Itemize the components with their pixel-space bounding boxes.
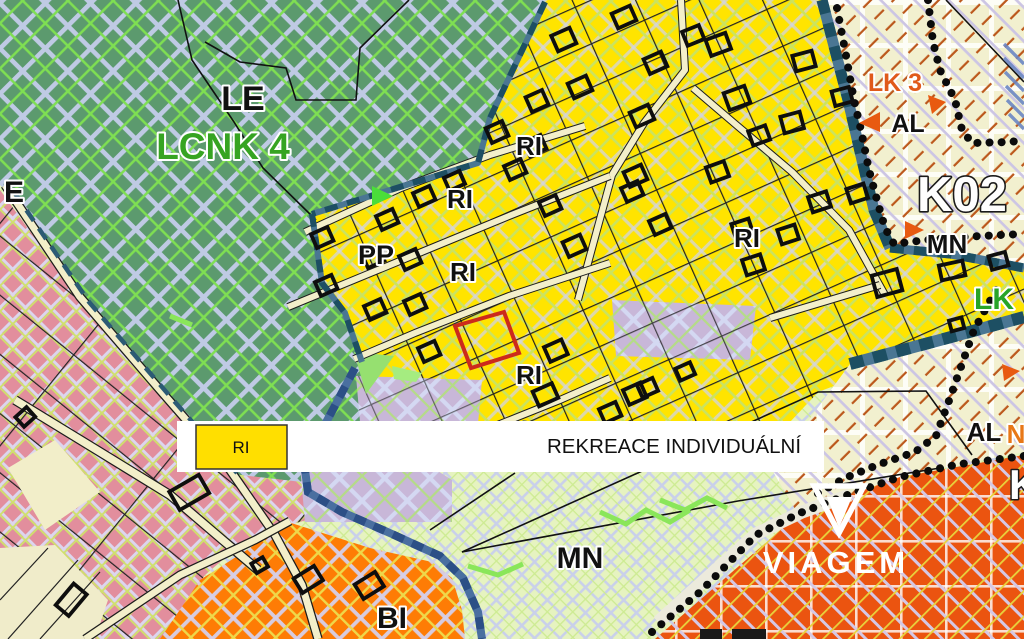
svg-text:RI: RI <box>447 184 473 214</box>
svg-text:REKREACE INDIVIDUÁLNÍ: REKREACE INDIVIDUÁLNÍ <box>547 435 801 458</box>
svg-text:E: E <box>4 176 24 209</box>
svg-text:AL: AL <box>891 110 924 138</box>
svg-text:LE: LE <box>221 80 264 118</box>
svg-text:VIAGEM: VIAGEM <box>763 545 909 580</box>
svg-text:K02: K02 <box>917 168 1007 222</box>
svg-text:LK: LK <box>974 283 1014 316</box>
svg-text:K: K <box>1009 461 1024 508</box>
svg-text:LK 3: LK 3 <box>868 69 922 97</box>
svg-text:AL: AL <box>967 417 1002 447</box>
svg-text:RI: RI <box>233 438 250 457</box>
svg-text:N: N <box>1007 419 1024 449</box>
svg-text:PP: PP <box>358 240 394 270</box>
svg-text:RI: RI <box>516 360 542 390</box>
svg-text:RI: RI <box>516 131 542 161</box>
svg-text:LCNK 4: LCNK 4 <box>156 126 290 167</box>
svg-text:RI: RI <box>450 257 476 287</box>
svg-text:MN: MN <box>927 229 967 259</box>
svg-text:RI: RI <box>734 223 760 253</box>
svg-text:MN: MN <box>557 542 604 575</box>
svg-text:BI: BI <box>377 602 407 635</box>
